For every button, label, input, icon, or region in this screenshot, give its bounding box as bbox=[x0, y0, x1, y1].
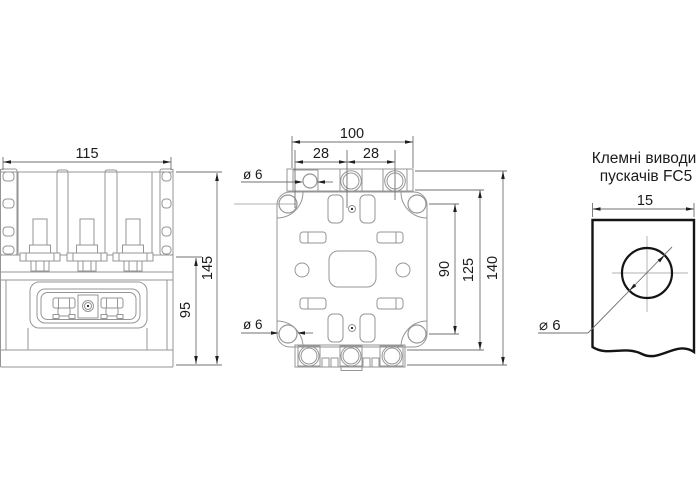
dim-label-125: 125 bbox=[461, 258, 477, 282]
coil-terminal-panel bbox=[30, 282, 147, 328]
bottom-terminal-strip bbox=[295, 345, 405, 371]
center-recess bbox=[329, 251, 376, 287]
mounting-view: 100 28 28 ø 6 ø 6 bbox=[234, 126, 507, 371]
terminal-view: Клемні виводи пускачів FC5 15 ⌀ 6 bbox=[538, 150, 696, 356]
arc-chute-rail-right bbox=[160, 169, 173, 255]
dim-label-115: 115 bbox=[75, 146, 98, 162]
mounting-hole-bottom-right bbox=[408, 325, 426, 343]
mounting-hole-top-right bbox=[408, 195, 426, 213]
panel-center-boss bbox=[78, 295, 98, 318]
terminal-stud-2 bbox=[67, 219, 107, 271]
title-line-1: Клемні виводи bbox=[592, 150, 697, 167]
coil-screw-left bbox=[53, 298, 75, 319]
dim-label-90: 90 bbox=[437, 261, 453, 277]
terminal-stud-3 bbox=[113, 219, 153, 271]
terminal-view-dimensions: 15 bbox=[593, 193, 695, 217]
divider-post bbox=[57, 170, 68, 255]
dim-label-dia6-top: ø 6 bbox=[243, 167, 263, 182]
terminal-hole bbox=[299, 346, 319, 366]
dim-label-140: 140 bbox=[485, 256, 501, 280]
terminal-plate: ⌀ 6 bbox=[538, 220, 694, 356]
front-view: 115 145 95 bbox=[1, 146, 223, 367]
dim-label-dia6-terminal: ⌀ 6 bbox=[539, 317, 561, 334]
terminal-hole bbox=[341, 346, 361, 366]
dim-label-15: 15 bbox=[637, 193, 653, 209]
terminal-stud-1 bbox=[20, 219, 60, 271]
hex-nut bbox=[124, 261, 142, 271]
terminal-hole-small bbox=[303, 174, 317, 188]
dim-label-145: 145 bbox=[200, 256, 216, 280]
mounting-body bbox=[234, 192, 427, 347]
dim-label-100: 100 bbox=[340, 126, 364, 142]
hex-nut bbox=[78, 261, 96, 271]
mounting-hole-bottom-left bbox=[279, 325, 297, 343]
drawing-title: Клемні виводи пускачів FC5 bbox=[592, 150, 697, 185]
coil-screw-right bbox=[101, 298, 123, 319]
terminal-hole bbox=[341, 171, 362, 192]
terminal-hole bbox=[382, 346, 402, 366]
top-terminal-strip bbox=[287, 169, 413, 191]
divider-post bbox=[105, 170, 117, 255]
contactor-dimension-drawing: 115 145 95 bbox=[0, 0, 700, 500]
title-line-2: пускачів FC5 bbox=[600, 168, 692, 185]
arc-chute-rail-left bbox=[1, 169, 18, 255]
dim-label-dia6-bottom: ø 6 bbox=[243, 317, 263, 332]
hex-nut bbox=[31, 261, 49, 271]
drawing-svg: 115 145 95 bbox=[0, 0, 700, 500]
dim-label-95: 95 bbox=[178, 302, 194, 318]
dim-label-28-left: 28 bbox=[313, 146, 329, 162]
dim-label-28-right: 28 bbox=[363, 146, 379, 162]
